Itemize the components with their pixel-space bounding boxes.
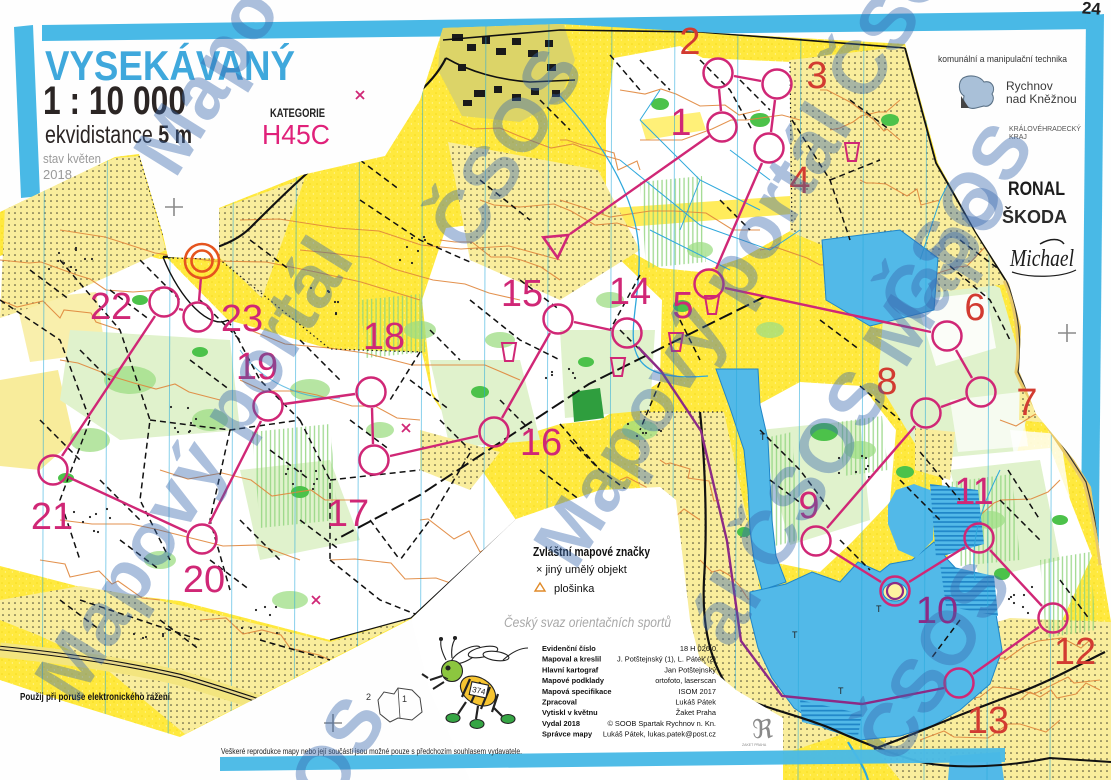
svg-text:T: T bbox=[876, 604, 882, 614]
svg-text:plošinka: plošinka bbox=[554, 583, 595, 595]
svg-text:21: 21 bbox=[31, 496, 73, 538]
svg-text:Mapoval a kreslil: Mapoval a kreslil bbox=[542, 655, 601, 664]
svg-text:Zpracoval: Zpracoval bbox=[542, 698, 577, 707]
svg-text:H45C: H45C bbox=[262, 119, 330, 150]
svg-text:KRÁLOVÉHRADECKÝ: KRÁLOVÉHRADECKÝ bbox=[1009, 124, 1081, 133]
svg-text:ℜ: ℜ bbox=[752, 715, 773, 744]
svg-text:20: 20 bbox=[183, 559, 225, 601]
svg-text:ZAKET PRAHA: ZAKET PRAHA bbox=[742, 743, 767, 747]
svg-text:Vydal 2018: Vydal 2018 bbox=[542, 719, 580, 728]
svg-text:Michael: Michael bbox=[1009, 246, 1074, 272]
svg-text:J. Potštejnský (1), L. Pátek (: J. Potštejnský (1), L. Pátek (2) bbox=[617, 655, 716, 664]
svg-text:Evidenční číslo: Evidenční číslo bbox=[542, 644, 596, 653]
svg-text:Mapová specifikace: Mapová specifikace bbox=[542, 687, 611, 696]
svg-text:Lukáš Pátek, lukas.patek@post.: Lukáš Pátek, lukas.patek@post.cz bbox=[603, 730, 716, 739]
svg-text:18 H 026 0: 18 H 026 0 bbox=[680, 644, 716, 653]
svg-text:T: T bbox=[838, 686, 844, 696]
svg-text:2: 2 bbox=[366, 692, 371, 702]
svg-text:1: 1 bbox=[670, 102, 691, 144]
svg-text:ortofoto, laserscan: ortofoto, laserscan bbox=[655, 676, 716, 685]
svg-text:Žaket Praha: Žaket Praha bbox=[676, 708, 717, 717]
svg-text:2: 2 bbox=[679, 21, 700, 63]
svg-text:Mapové podklady: Mapové podklady bbox=[542, 676, 605, 685]
svg-text:15: 15 bbox=[501, 273, 543, 315]
svg-text:Hlavní kartograf: Hlavní kartograf bbox=[542, 665, 599, 674]
svg-text:7: 7 bbox=[1016, 382, 1037, 424]
svg-text:ISOM 2017: ISOM 2017 bbox=[679, 687, 716, 696]
svg-text:stav květen: stav květen bbox=[43, 151, 101, 166]
svg-text:© SOOB Spartak Rychnov n. Kn.: © SOOB Spartak Rychnov n. Kn. bbox=[607, 719, 716, 728]
svg-text:18: 18 bbox=[363, 316, 405, 358]
svg-text:Český svaz orientačních sportů: Český svaz orientačních sportů bbox=[504, 614, 671, 630]
svg-text:24: 24 bbox=[1081, 0, 1102, 19]
svg-text:11: 11 bbox=[954, 471, 993, 513]
svg-text:13: 13 bbox=[967, 700, 1009, 742]
svg-text:22: 22 bbox=[90, 286, 132, 328]
svg-text:Správce mapy: Správce mapy bbox=[542, 730, 593, 739]
svg-text:14: 14 bbox=[609, 271, 651, 313]
svg-text:Lukáš Pátek: Lukáš Pátek bbox=[675, 698, 716, 707]
svg-text:1: 1 bbox=[402, 694, 407, 704]
svg-text:2018: 2018 bbox=[43, 167, 72, 182]
svg-text:17: 17 bbox=[327, 493, 369, 535]
svg-text:komunální a manipulační techni: komunální a manipulační technika bbox=[938, 54, 1068, 65]
svg-text:Rychnov: Rychnov bbox=[1006, 79, 1053, 93]
svg-text:16: 16 bbox=[520, 422, 562, 464]
svg-text:Jan Potštejnský: Jan Potštejnský bbox=[664, 665, 716, 674]
svg-text:T: T bbox=[792, 630, 798, 640]
svg-text:12: 12 bbox=[1054, 631, 1096, 673]
svg-text:nad Kněžnou: nad Kněžnou bbox=[1006, 92, 1077, 106]
svg-text:Vytiskl v květnu: Vytiskl v květnu bbox=[542, 708, 598, 717]
